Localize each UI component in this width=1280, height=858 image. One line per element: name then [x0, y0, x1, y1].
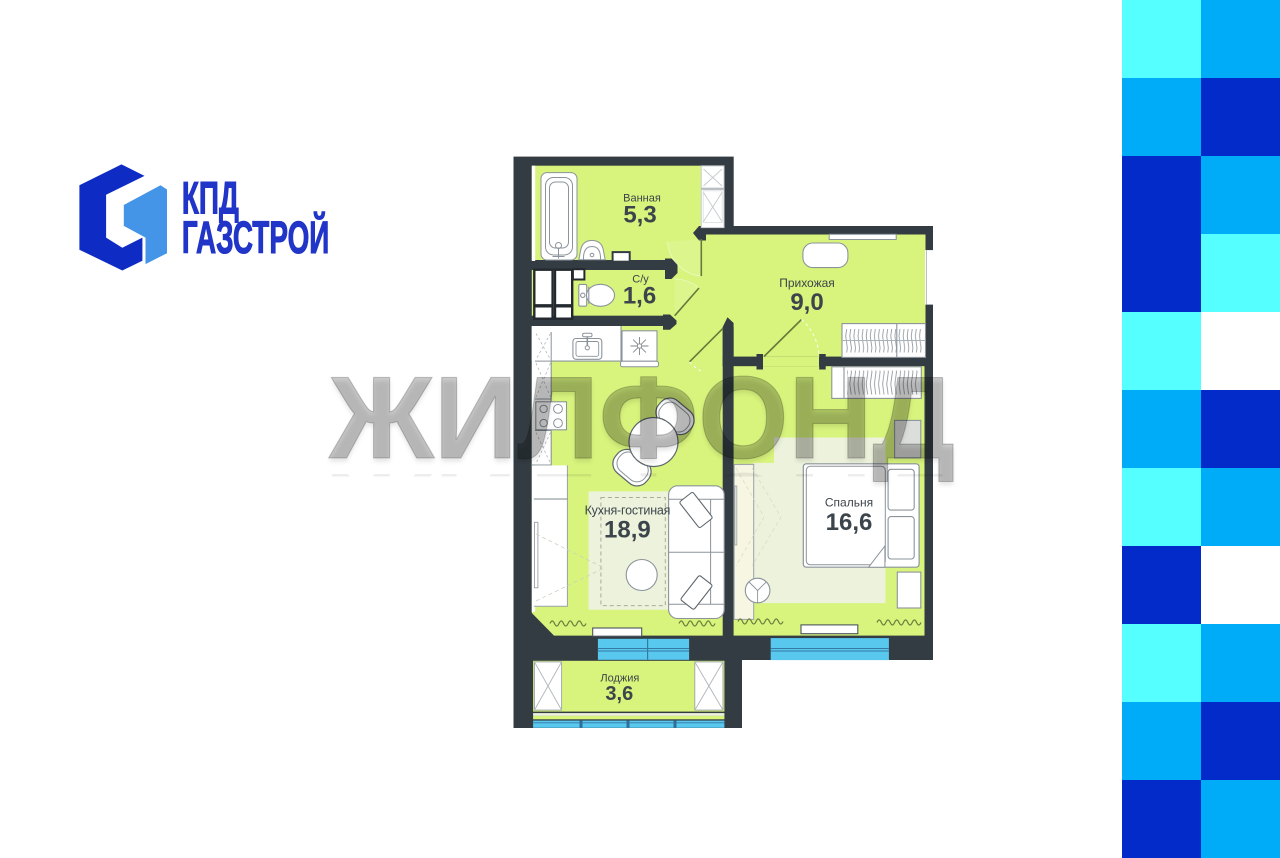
- svg-text:9,0: 9,0: [790, 289, 823, 316]
- svg-text:Спальня: Спальня: [825, 496, 873, 510]
- svg-text:5,3: 5,3: [623, 202, 656, 229]
- svg-text:3,6: 3,6: [605, 683, 633, 705]
- svg-text:ГАЗСТРОЙ: ГАЗСТРОЙ: [182, 212, 329, 262]
- svg-text:Прихожая: Прихожая: [779, 276, 835, 290]
- svg-text:18,9: 18,9: [604, 517, 651, 544]
- svg-text:1,6: 1,6: [623, 283, 656, 310]
- svg-text:Кухня-гостиная: Кухня-гостиная: [585, 504, 671, 518]
- svg-text:16,6: 16,6: [826, 509, 873, 536]
